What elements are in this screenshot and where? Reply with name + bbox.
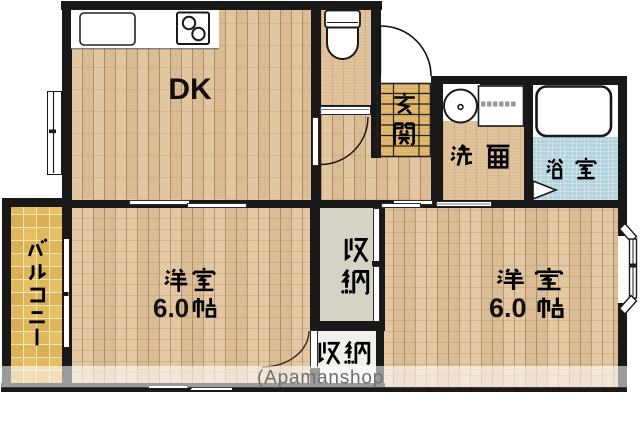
svg-text:DK: DK bbox=[168, 73, 212, 106]
svg-text:6.0: 6.0 bbox=[489, 293, 527, 323]
svg-text:6.0: 6.0 bbox=[153, 293, 189, 323]
svg-text:(Apamanshop: (Apamanshop bbox=[257, 368, 384, 389]
